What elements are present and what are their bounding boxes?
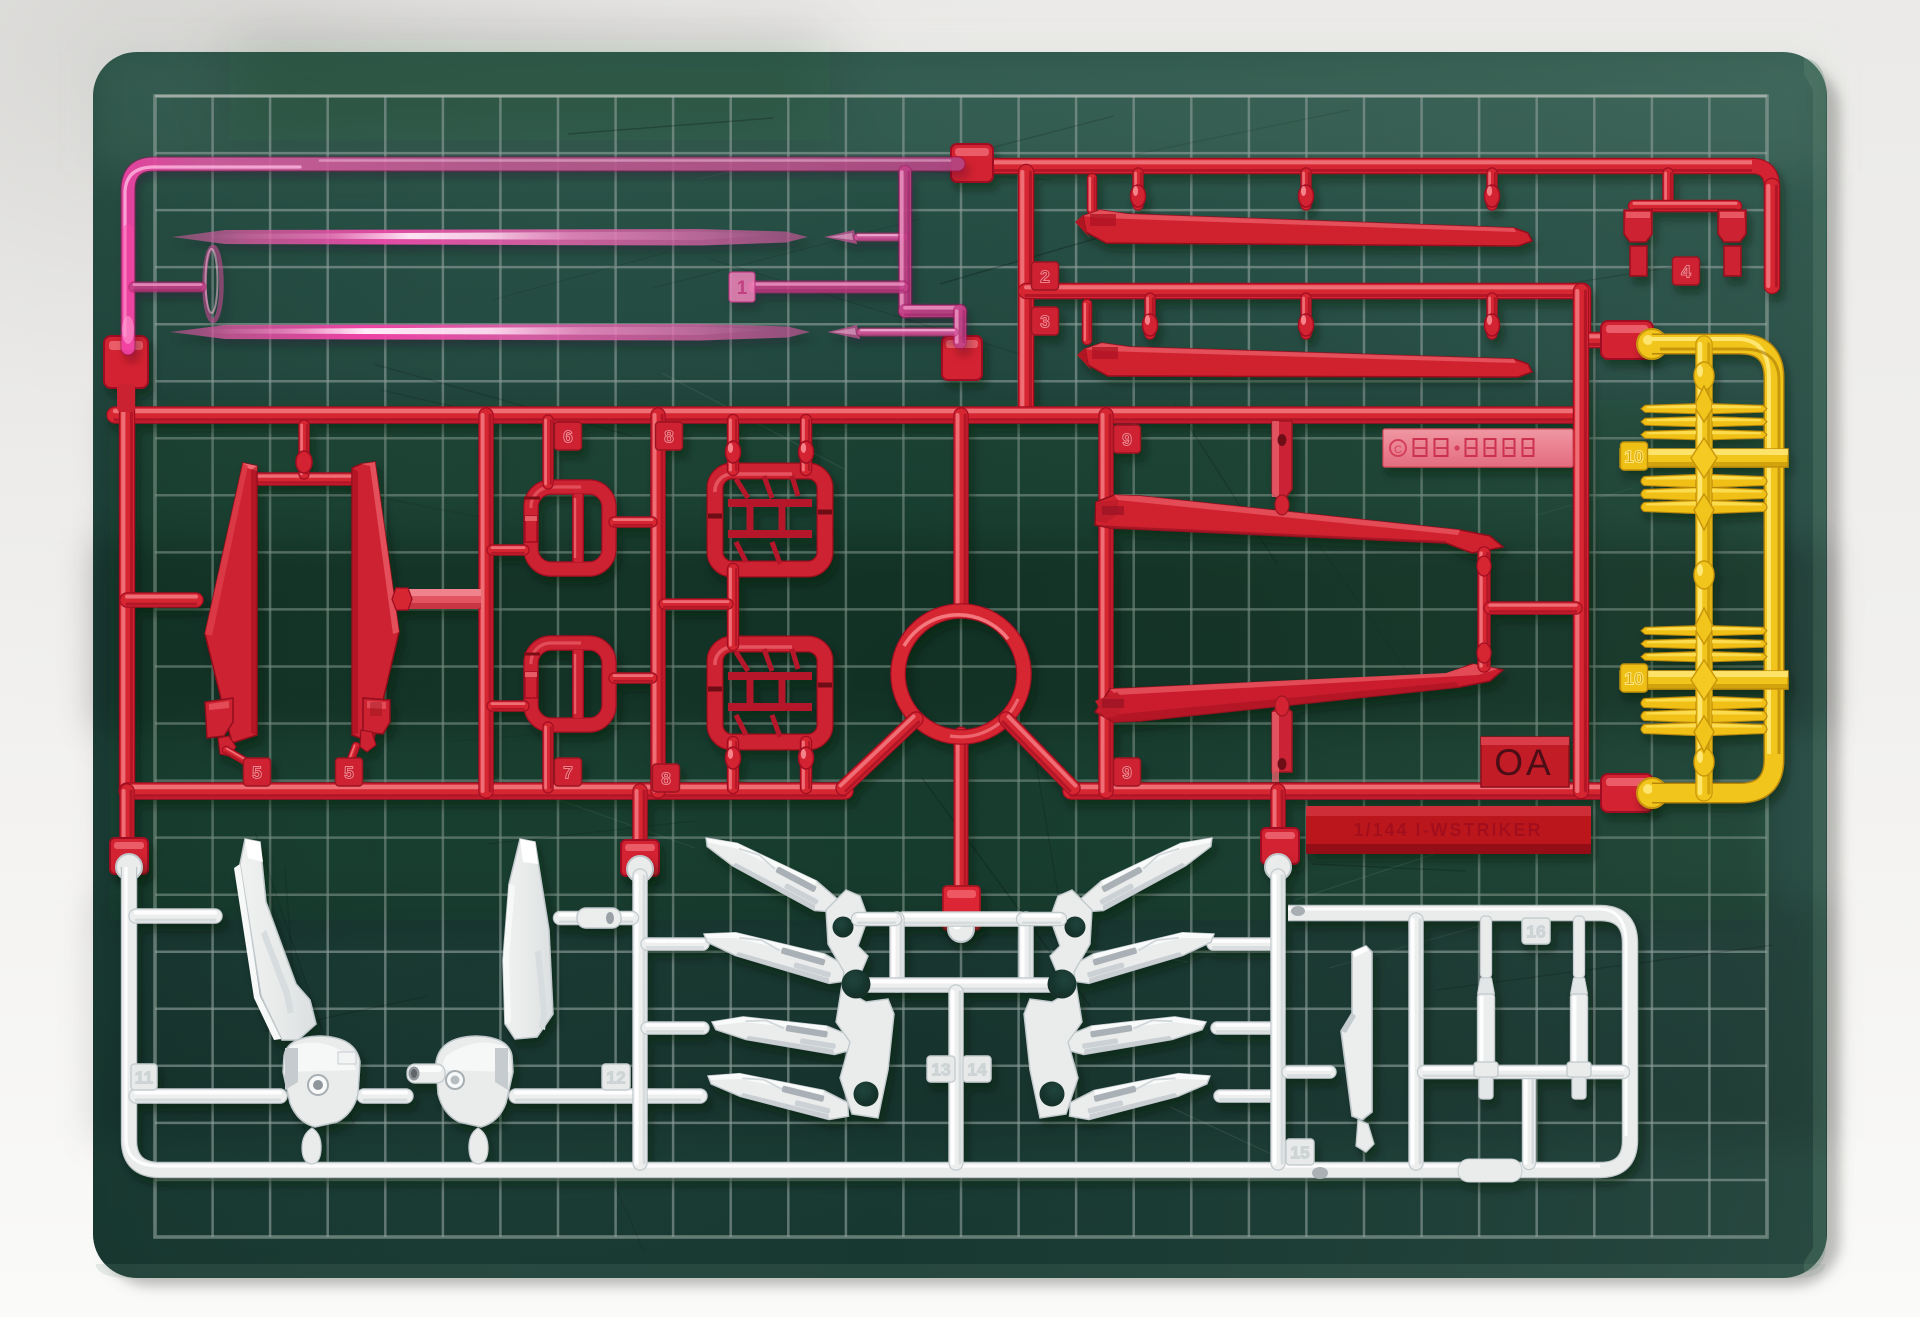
svg-text:1/144 I-WSTRIKER: 1/144 I-WSTRIKER (1353, 820, 1542, 840)
svg-text:10: 10 (1624, 447, 1644, 467)
svg-text:5: 5 (252, 763, 262, 783)
svg-text:14: 14 (967, 1060, 987, 1080)
svg-text:9: 9 (1122, 430, 1132, 450)
svg-text:15: 15 (1290, 1143, 1310, 1163)
svg-text:8: 8 (664, 427, 674, 447)
svg-text:11: 11 (135, 1068, 154, 1088)
svg-text:C: C (1394, 444, 1402, 456)
svg-text:1: 1 (737, 278, 748, 299)
svg-text:10: 10 (1624, 669, 1644, 689)
svg-text:13: 13 (931, 1060, 951, 1080)
svg-text:12: 12 (606, 1068, 626, 1088)
svg-text:2: 2 (1040, 267, 1050, 287)
svg-text:3: 3 (1040, 312, 1050, 332)
svg-text:7: 7 (563, 763, 573, 783)
svg-text:OA: OA (1494, 742, 1553, 783)
svg-text:8: 8 (661, 769, 671, 789)
svg-text:6: 6 (563, 427, 573, 447)
svg-text:16: 16 (1526, 922, 1546, 942)
svg-text:4: 4 (1681, 262, 1691, 282)
svg-text:9: 9 (1122, 763, 1132, 783)
svg-text:5: 5 (344, 763, 354, 783)
